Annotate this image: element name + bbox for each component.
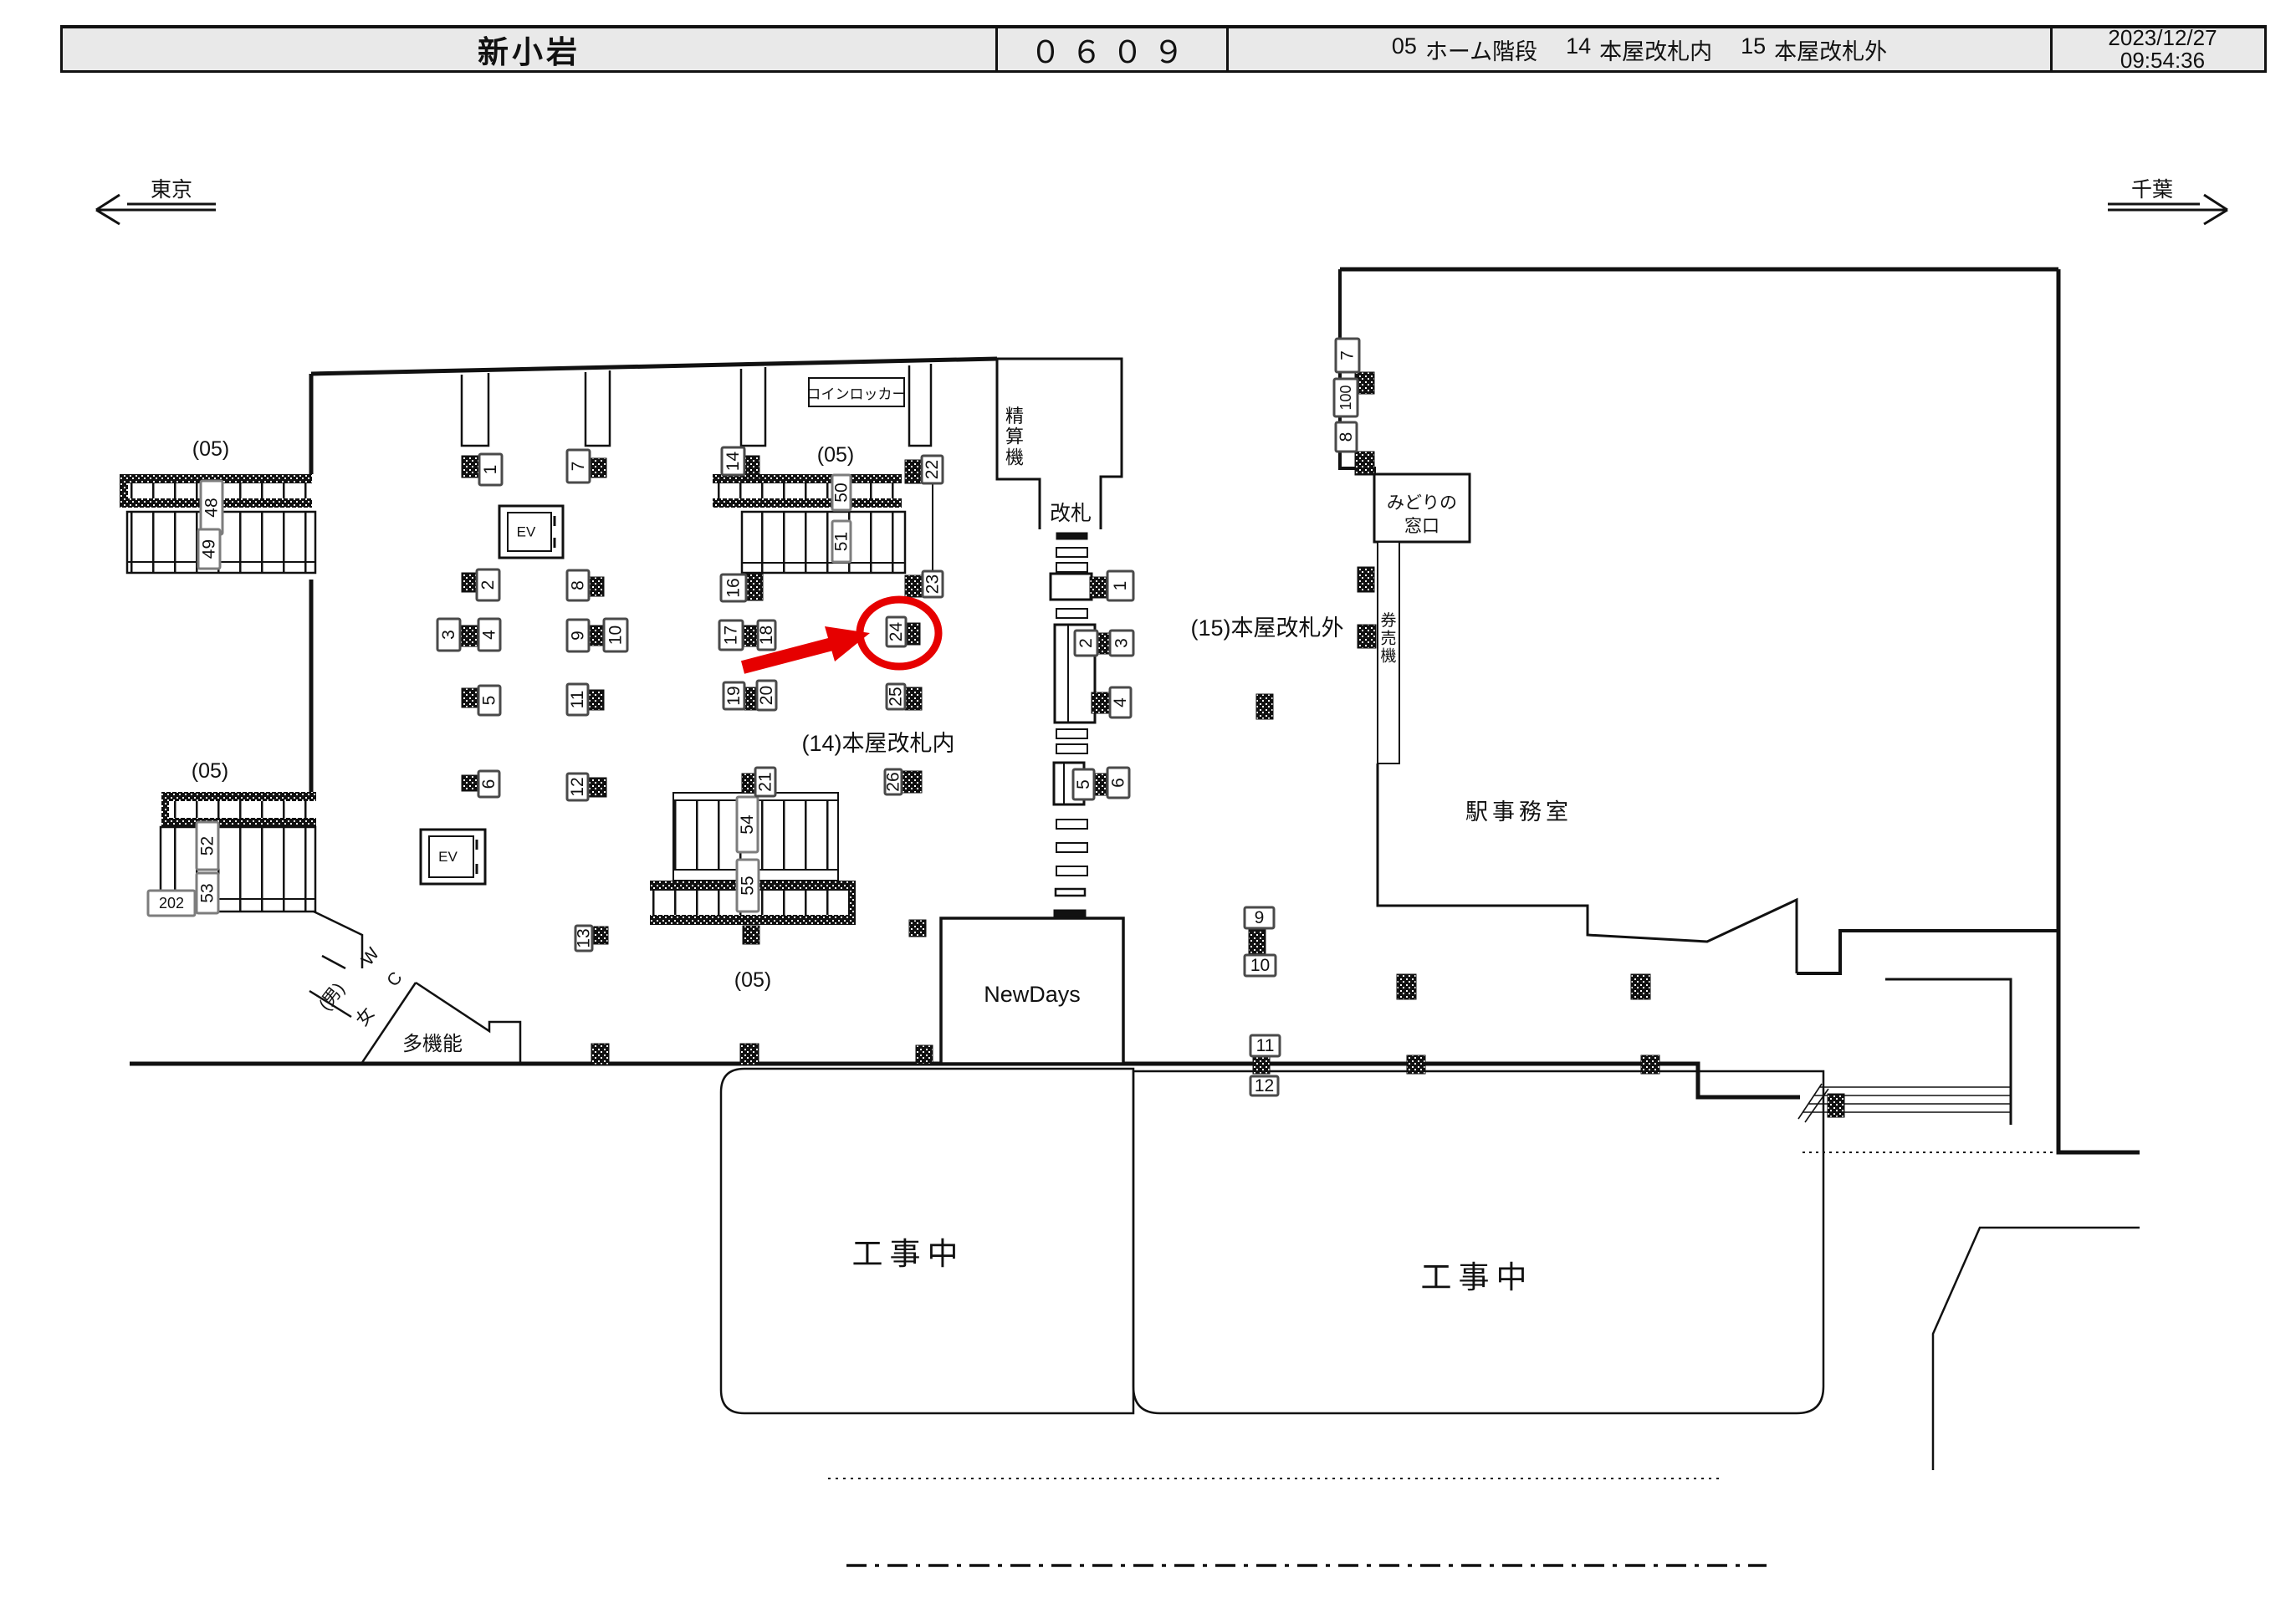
timestamp: 2023/12/27 09:54:36 [2050,28,2264,70]
area-label: 駅事務室 [1465,799,1572,825]
camera-marker-7: 7 [567,450,590,483]
camera-marker-2: 2 [477,569,499,600]
camera-marker-5: 5 [1073,769,1094,799]
camera-marker-7: 7 [1336,339,1359,372]
camera-number: 11 [1256,1036,1275,1055]
camera-number: 4 [480,630,499,640]
camera-direction-mark [742,774,756,793]
area-label: 工事中 [1421,1260,1534,1295]
camera-direction-mark [743,626,758,646]
camera-marker-10: 10 [604,619,627,651]
camera-number: 2 [478,580,498,590]
date-value: 2023/12/27 [2108,27,2217,49]
area-label: C [383,968,406,990]
stair-number: 51 [832,532,851,551]
stair-number: 55 [739,876,758,895]
area-label: (05) [192,759,228,783]
camera-marker-9: 9 [567,620,589,651]
location-code: 15 [1741,33,1766,66]
stair-label-50: 50 [832,475,851,510]
location-name: 本屋改札外 [1774,33,1887,66]
camera-number: 100 [1337,385,1354,410]
map-code: ０６０９ [995,28,1226,70]
camera-direction-mark [1641,1055,1659,1074]
camera-direction-mark [743,926,759,944]
camera-number: 5 [1074,779,1093,789]
camera-marker-26: 26 [884,769,903,794]
area-label: 多機能 [402,1033,463,1055]
camera-marker-19: 19 [724,682,744,709]
camera-direction-mark [594,927,608,944]
location-item: 05 ホーム階段 [1392,33,1537,66]
camera-markers: 1728349105116121321142216231718241920252… [437,339,1359,1095]
camera-direction-mark [906,623,920,645]
stair-number: 54 [738,815,757,835]
camera-direction-mark [462,573,477,592]
location-name: 本屋改札内 [1599,33,1712,66]
camera-marker-100: 100 [1334,379,1358,416]
camera-direction-mark [1097,633,1110,654]
camera-number: 11 [568,691,587,709]
elevator-box: EV [499,506,563,558]
camera-number: 12 [568,777,587,796]
camera-direction-mark [905,575,923,597]
location-item: 14 本屋改札内 [1566,33,1712,66]
stair-number: 49 [200,539,219,559]
area-label: 券売機 [1380,611,1396,666]
area-label: 窓口 [1404,517,1439,536]
camera-number: 7 [1338,350,1358,360]
stair-label-55: 55 [737,860,759,912]
camera-direction-mark [1358,625,1376,648]
area-label: (男) [315,979,349,1014]
stair-label-48: 48 [201,481,222,534]
camera-direction-mark [588,690,604,710]
area-label: (05) [734,968,771,992]
station-floorplan: 東京 千葉 [0,0,2296,1624]
camera-number: 16 [724,578,744,597]
camera-direction-mark [462,688,478,707]
area-label: 精算機 [1005,406,1024,467]
camera-number: 6 [479,779,499,789]
camera-direction-mark [1253,1057,1270,1074]
camera-marker-16: 16 [721,575,746,601]
area-label: (15)本屋改札外 [1190,615,1343,641]
camera-direction-mark [589,626,604,646]
camera-direction-mark [744,687,757,710]
camera-number: 10 [606,626,626,645]
camera-marker-11: 11 [567,684,588,715]
camera-marker-1: 1 [479,454,502,485]
area-label: みどりの [1387,493,1457,513]
camera-marker-12: 12 [1250,1076,1278,1095]
camera-number: 26 [884,772,903,791]
camera-marker-24: 24 [887,617,906,646]
camera-marker-1: 1 [1107,571,1133,600]
camera-direction-mark [905,460,922,483]
camera-direction-mark [588,778,606,797]
area-label: NewDays [984,982,1081,1007]
area-label: 改札 [1050,502,1092,525]
camera-number: 17 [722,626,741,645]
camera-direction-mark [1397,974,1416,999]
camera-direction-mark [1358,567,1374,592]
camera-number: 20 [757,686,776,705]
camera-number: 3 [439,630,458,640]
camera-number: 9 [569,631,588,641]
direction-label-left: 東京 [151,178,192,202]
camera-direction-mark [1092,692,1110,713]
stair-label-51: 51 [832,521,851,562]
time-value: 09:54:36 [2120,49,2205,72]
camera-marker-3: 3 [1110,631,1133,656]
camera-direction-mark [589,577,604,596]
camera-marker-17: 17 [719,620,743,650]
camera-direction-mark [462,456,479,477]
stair-label-54: 54 [737,797,758,852]
camera-direction-mark [591,1044,609,1065]
camera-marker-23: 23 [923,571,943,597]
camera-direction-mark [1094,774,1107,795]
direction-label-right: 千葉 [2131,178,2173,202]
location-code: 05 [1392,33,1417,66]
camera-number: 1 [481,465,500,475]
camera-number: 1 [1111,581,1130,591]
camera-direction-mark [905,687,922,710]
camera-direction-mark [1256,694,1273,719]
direction-tokyo: 東京 [96,178,216,224]
camera-number: 7 [569,462,588,472]
direction-chiba: 千葉 [2108,178,2227,224]
camera-number: 14 [724,452,743,472]
stair-label-53: 53 [197,873,218,913]
elevator-label: EV [517,524,536,540]
camera-direction-mark [740,1044,759,1065]
stairs-platform-50-51 [713,474,905,573]
camera-direction-mark [1090,577,1107,598]
camera-direction-mark [744,456,759,479]
elevator-label: EV [438,849,458,865]
camera-number: 13 [575,928,594,947]
stair-label-52: 52 [197,822,218,870]
camera-direction-mark [1407,1055,1425,1074]
camera-number: 3 [1112,638,1132,648]
area-label: 工事中 [852,1237,965,1271]
camera-marker-2: 2 [1075,631,1097,656]
stair-number: 48 [202,498,222,517]
camera-number: 12 [1255,1076,1274,1095]
area-label: コインロッカー [807,386,907,402]
location-code: 14 [1566,33,1591,66]
camera-number: 21 [756,772,775,791]
highlight-arrow-shaft [743,644,832,667]
ticket-gates [1051,533,1095,919]
area-label: 女 [352,1004,378,1030]
camera-number: 22 [923,460,942,479]
camera-number: 10 [1250,956,1270,975]
camera-number: 8 [569,580,588,590]
camera-marker-13: 13 [575,926,594,951]
camera-marker-4: 4 [1110,687,1131,718]
area-label: (05) [192,437,229,461]
stair-number: 50 [832,483,851,502]
stair-number: 52 [198,836,217,855]
camera-marker-4: 4 [478,619,500,651]
camera-marker-9: 9 [1245,907,1274,928]
camera-direction-mark [462,775,478,791]
camera-number: 24 [887,622,906,642]
camera-number: 6 [1109,778,1128,788]
camera-direction-mark [590,458,606,477]
area-label: (05) [817,443,854,467]
stair-number: 53 [198,883,217,902]
construction-area-right [1133,1071,1823,1413]
camera-number: 2 [1076,638,1096,648]
camera-marker-3: 3 [437,619,460,651]
area-label: (14)本屋改札内 [801,731,954,756]
camera-number: 9 [1255,908,1265,927]
camera-marker-10: 10 [1245,955,1276,976]
elevator-box: EV [421,830,485,884]
camera-direction-mark [1249,930,1266,953]
camera-direction-mark [746,573,763,600]
station-name: 新小岩 [63,28,995,70]
camera-number: 19 [724,686,744,705]
camera-marker-12: 12 [567,774,588,800]
camera-direction-mark [1631,974,1650,999]
camera-direction-mark [1828,1094,1844,1117]
camera-direction-mark [902,771,922,793]
camera-marker-11: 11 [1250,1035,1280,1056]
camera-marker-6: 6 [1107,768,1129,798]
camera-marker-6: 6 [478,771,499,797]
camera-marker-25: 25 [887,684,906,709]
camera-number: 5 [480,696,499,706]
camera-marker-8: 8 [1336,422,1357,452]
camera-marker-20: 20 [757,681,776,710]
camera-marker-8: 8 [567,570,589,600]
camera-number: 25 [887,687,906,706]
camera-number: 8 [1337,432,1356,442]
camera-marker-5: 5 [478,686,500,715]
camera-marker-22: 22 [922,456,943,483]
stair-label-202: 202 [148,891,195,916]
camera-number: 18 [757,626,776,645]
camera-number: 4 [1111,697,1130,707]
stair-number: 202 [159,895,184,912]
camera-direction-mark [460,626,478,646]
camera-direction-mark [909,920,926,937]
camera-location-legend: 05 ホーム階段 14 本屋改札内 15 本屋改札外 [1226,28,2050,70]
camera-marker-14: 14 [722,447,744,475]
location-item: 15 本屋改札外 [1741,33,1887,66]
camera-marker-21: 21 [755,768,775,796]
camera-number: 23 [923,575,943,594]
location-name: ホーム階段 [1425,33,1537,66]
camera-direction-marks [460,372,1844,1117]
camera-direction-mark [916,1045,933,1064]
header-bar: 新小岩 ０６０９ 05 ホーム階段 14 本屋改札内 15 本屋改札外 2023… [60,25,2267,73]
stair-label-49: 49 [198,529,220,569]
camera-direction-mark [1355,452,1374,475]
camera-marker-18: 18 [757,620,776,650]
